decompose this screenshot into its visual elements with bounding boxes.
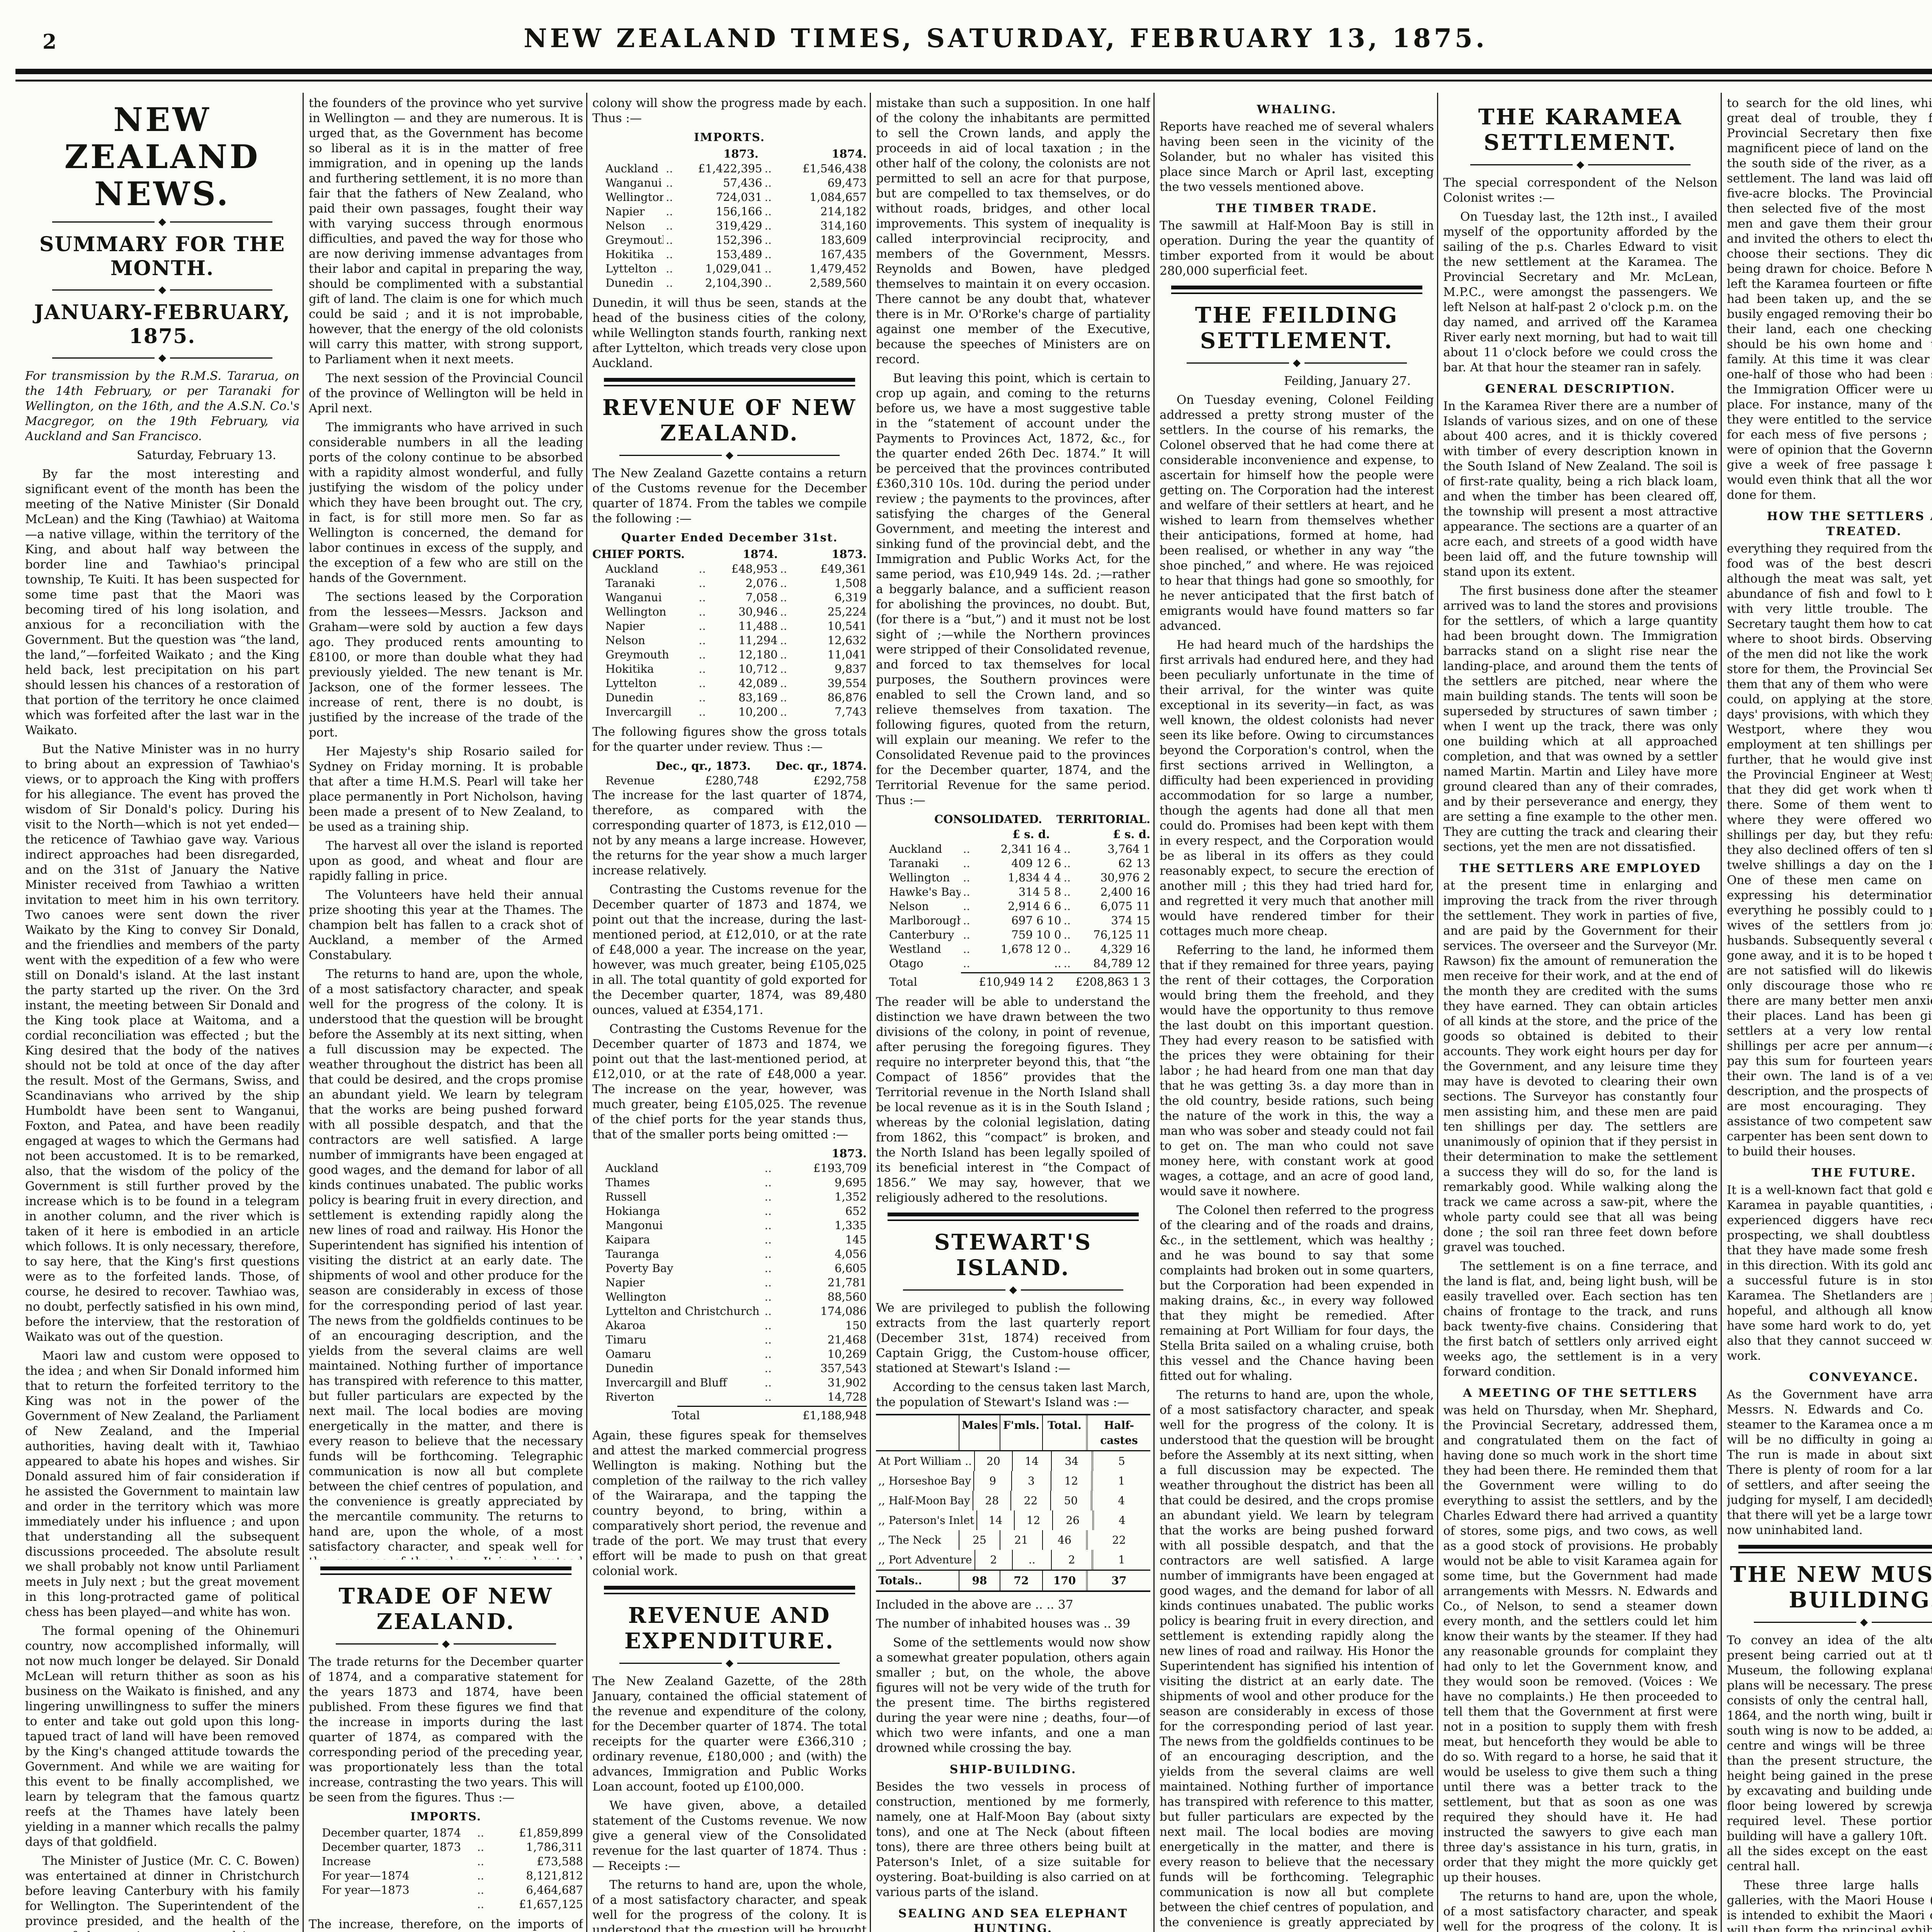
column-header: CHIEF PORTS. [592, 547, 689, 562]
cell: 1 [1092, 1550, 1150, 1570]
row-label: Hokitika [605, 662, 696, 676]
table-caption: Quarter Ended December 31st. [592, 530, 867, 545]
row-value: 76,125 11 [1073, 928, 1150, 942]
row-value: 2,104,390 [675, 276, 762, 290]
leader-dots: .. [663, 233, 675, 247]
column-subheader: £ s. d. [934, 827, 1050, 842]
table-row: Greymouth..152,396..183,609 [592, 233, 867, 247]
leader-dots: .. [961, 842, 972, 856]
row-value: 2,341 16 4 [973, 842, 1061, 856]
subhead-timber-trade: THE TIMBER TRADE. [1160, 201, 1434, 216]
row-value: 83,169 [708, 690, 778, 705]
row-value: 69,473 [774, 176, 867, 190]
table-subheaders: £ s. d. £ s. d. [876, 827, 1150, 842]
leader-dots: .. [778, 690, 789, 705]
leader-dots: .. [696, 590, 708, 605]
row-value: 1,786,311 [486, 1840, 583, 1854]
table-row: Hokitika..10,712..9,837 [592, 662, 867, 676]
headline-revenue-of-nz: REVENUE OF NEW ZEALAND. [592, 395, 867, 446]
table-row: ,, Port Adventure2..21 [876, 1550, 1150, 1570]
column-header: CONSOLIDATED. [915, 812, 1042, 827]
row-value: £1,657,125 [486, 1897, 583, 1912]
row-value: 1,678 12 0 [973, 942, 1061, 956]
leader-dots: .. [663, 247, 675, 262]
leader-dots: .. [961, 913, 972, 928]
table-row: ,, Half-Moon Bay2822504 [876, 1491, 1150, 1510]
row-label: Nelson [889, 899, 961, 913]
subtitle-summary: SUMMARY FOR THE MONTH. [25, 233, 299, 281]
row-value: 724,031 [675, 190, 762, 204]
row-value: 6,075 11 [1073, 899, 1150, 913]
table-note: Included in the above are .. .. 37 [876, 1597, 1150, 1612]
row-value: 409 12 6 [973, 856, 1061, 871]
cell: 98 [959, 1571, 1000, 1590]
body-paragraph: On Tuesday last, the 12th inst., I avail… [1443, 209, 1718, 375]
row-label: Hokianga [605, 1204, 762, 1218]
row-label: Lyttelton [605, 676, 696, 690]
row-value: £193,709 [774, 1161, 867, 1175]
row-label: Napier [605, 1276, 762, 1290]
row-label: Oamaru [605, 1347, 762, 1361]
subhead-general-description: GENERAL DESCRIPTION. [1443, 381, 1718, 396]
row-label: Auckland [605, 562, 696, 576]
table-row: Mangonui..1,335 [592, 1218, 867, 1233]
row-label: Dunedin [605, 1361, 762, 1376]
row-label: Wanganui [605, 176, 663, 190]
body-paragraph: The special correspondent of the Nelson … [1443, 175, 1718, 206]
column-divider [1437, 93, 1438, 1932]
row-value: 183,609 [774, 233, 867, 247]
row-label: Auckland [889, 842, 961, 856]
imports-by-port-table: IMPORTS. 1873. 1874. Auckland..£1,422,39… [592, 130, 867, 290]
leader-dots: .. [663, 204, 675, 219]
row-value: £10,949 14 2 [946, 975, 1054, 989]
leader-dots: .. [961, 928, 972, 942]
leader-dots: .. [663, 276, 675, 290]
row-value: 7,743 [789, 705, 867, 719]
row-label: Kaipara [605, 1233, 762, 1247]
cell: Totals.. [876, 1571, 959, 1590]
cell [876, 1415, 959, 1450]
table-row: Invercargill and Bluff..31,902 [592, 1376, 867, 1390]
leader-dots: .. [778, 562, 789, 576]
double-rule [1738, 1545, 1932, 1553]
section-title-nz-news: NEW ZEALAND NEWS. [25, 101, 299, 213]
table-row: Increase..£73,588 [309, 1854, 583, 1869]
leader-dots: .. [696, 676, 708, 690]
leader-dots: .. [762, 219, 774, 233]
cell: 20 [974, 1451, 1012, 1471]
subhead-conveyance: CONVEYANCE. [1727, 1370, 1932, 1385]
cell: 50 [1050, 1491, 1091, 1510]
table-row: ..£1,657,125 [309, 1897, 583, 1912]
diamond-rule: ◆ [52, 286, 272, 294]
table-row: ,, The Neck25214622 [876, 1530, 1150, 1550]
headline-trade-of-nz: TRADE OF NEW ZEALAND. [309, 1583, 583, 1634]
table-row: Auckland..£1,422,395..£1,546,438 [592, 162, 867, 176]
table-row: Napier..156,166..214,182 [592, 204, 867, 219]
year-header: 1874. [759, 146, 867, 162]
column-subheader: £ s. d. [1050, 827, 1150, 842]
leader-dots: .. [762, 1161, 774, 1175]
row-value: 153,489 [675, 247, 762, 262]
leader-dots: .. [762, 247, 774, 262]
double-rule [604, 378, 855, 386]
row-value: 57,436 [675, 176, 762, 190]
totals-headers: Dec., qr., 1873. Dec. qr., 1874. [592, 759, 867, 774]
row-label: Riverton [605, 1390, 762, 1404]
row-label: Greymouth [605, 233, 663, 247]
row-value: 1,029,041 [675, 262, 762, 276]
row-value: £73,588 [486, 1854, 583, 1869]
row-label: Lyttelton [605, 262, 663, 276]
row-value: 174,086 [774, 1304, 867, 1318]
double-rule [604, 1586, 855, 1594]
body-paragraph: The following figures show the gross tot… [592, 724, 867, 755]
leader-dots: .. [762, 1261, 774, 1276]
body-paragraph: the founders of the province who yet sur… [309, 96, 583, 367]
row-value: 8,121,812 [486, 1869, 583, 1883]
table-total-row: Totals.. 98 72 170 37 [876, 1570, 1150, 1590]
column-header: Dec., qr., 1873. [635, 759, 751, 774]
subtitle-daterange: JANUARY-FEBRUARY, 1875. [25, 301, 299, 349]
row-value: 2,076 [708, 576, 778, 590]
body-paragraph: As the Government have arranged with Mes… [1727, 1387, 1932, 1538]
headline-new-museum-building: THE NEW MUSEUM BUILDING. [1727, 1562, 1932, 1613]
row-label: Wellington [605, 1290, 762, 1304]
row-label: Lyttelton and Christchurch [605, 1304, 762, 1318]
table-row: Napier..11,488..10,541 [592, 619, 867, 633]
leader-dots: .. [762, 1190, 774, 1204]
table-row: Riverton..14,728 [592, 1390, 867, 1404]
row-value: 1,508 [789, 576, 867, 590]
cell: At Port William .. [876, 1451, 974, 1471]
subhead-how-settlers-treated: HOW THE SETTLERS ARE TREATED. [1727, 509, 1932, 539]
table-row: Hokitika..153,489..167,435 [592, 247, 867, 262]
row-value: 11,488 [708, 619, 778, 633]
table-row: Dunedin..2,104,390..2,589,560 [592, 276, 867, 290]
row-value: 10,712 [708, 662, 778, 676]
cell: 22 [1086, 1530, 1150, 1550]
leader-dots: .. [663, 190, 675, 204]
body-paragraph: The increase, therefore, on the imports … [309, 1917, 583, 1932]
table-row: Dunedin..83,169..86,876 [592, 690, 867, 705]
leader-dots: .. [778, 605, 789, 619]
leader-dots: .. [961, 885, 972, 899]
diamond-rule: ◆ [52, 218, 272, 226]
row-label: Total [605, 1408, 766, 1423]
row-value: 9,695 [774, 1175, 867, 1190]
row-value: £48,953 [708, 562, 778, 576]
table-row: Otago......84,789 12 [876, 956, 1150, 971]
leader-dots: .. [663, 176, 675, 190]
dateline: Feilding, January 27. [1160, 374, 1434, 389]
row-label: Nelson [605, 633, 696, 648]
row-value: .. [973, 956, 1061, 971]
table-row: December quarter, 1874..£1,859,899 [309, 1826, 583, 1840]
row-value: 319,429 [675, 219, 762, 233]
body-paragraph: The immigrants who have arrived in such … [309, 420, 583, 586]
row-label: Increase [322, 1854, 475, 1869]
transmission-note: For transmission by the R.M.S. Tararua, … [25, 369, 299, 444]
body-paragraph: Contrasting the Customs Revenue for the … [592, 1022, 867, 1142]
leader-dots: .. [1061, 956, 1073, 971]
body-paragraph: The harvest all over the island is repor… [309, 838, 583, 884]
table-row: Poverty Bay..6,605 [592, 1261, 867, 1276]
table-row: Auckland..£193,709 [592, 1161, 867, 1175]
table-row: At Port William ..2014345 [876, 1451, 1150, 1471]
row-value: 1,335 [774, 1218, 867, 1233]
cell: 4 [1091, 1491, 1150, 1510]
body-paragraph: The returns to hand are, upon the whole,… [1160, 1388, 1434, 1932]
dateline: Saturday, February 13. [25, 448, 299, 463]
cell: 21 [1000, 1530, 1042, 1550]
cell: 12 [1051, 1471, 1091, 1491]
row-value: 12,180 [708, 648, 778, 662]
leader-dots: .. [696, 690, 708, 705]
row-value: 1,479,452 [774, 262, 867, 276]
leader-dots: .. [762, 276, 774, 290]
total-rule [961, 972, 1150, 973]
table-row: Auckland..£48,953..£49,361 [592, 562, 867, 576]
body-paragraph: Some of the settlements would now show a… [876, 1635, 1150, 1756]
cell: 2 [975, 1550, 1012, 1570]
leader-dots: .. [778, 590, 789, 605]
table-row: Lyttelton..42,089..39,554 [592, 676, 867, 690]
diamond-rule: ◆ [336, 1640, 556, 1648]
row-value: 25,224 [789, 605, 867, 619]
leader-dots: .. [1061, 899, 1073, 913]
table-row: ,, Horseshoe Bay93121 [876, 1471, 1150, 1491]
row-value: 652 [774, 1204, 867, 1218]
body-paragraph: The returns to hand are, upon the whole,… [309, 967, 583, 1560]
row-value: 10,541 [789, 619, 867, 633]
leader-dots: .. [1061, 885, 1073, 899]
row-label: Otago [889, 956, 961, 971]
diamond-rule: ◆ [1470, 161, 1690, 168]
row-value: 7,058 [708, 590, 778, 605]
row-value: 314,160 [774, 219, 867, 233]
row-value: 86,876 [789, 690, 867, 705]
leader-dots: .. [475, 1854, 486, 1869]
row-label: Revenue [605, 774, 658, 788]
table-row: Lyttelton and Christchurch..174,086 [592, 1304, 867, 1318]
row-label: Auckland [605, 1161, 762, 1175]
body-paragraph: In the Karamea River there are a number … [1443, 399, 1718, 580]
row-value: £49,361 [789, 562, 867, 576]
body-paragraph: The returns to hand are, upon the whole,… [1443, 1889, 1718, 1932]
table-row: Napier..21,781 [592, 1276, 867, 1290]
leader-dots: .. [778, 662, 789, 676]
leader-dots: .. [778, 705, 789, 719]
table-row: Revenue £280,748 £292,758 [592, 774, 867, 788]
table-body: At Port William ..2014345,, Horseshoe Ba… [876, 1451, 1150, 1570]
newspaper-page: 2 NEW ZEALAND TIMES, SATURDAY, FEBRUARY … [0, 0, 1932, 1932]
body-paragraph: Maori law and custom were opposed to the… [25, 1349, 299, 1620]
leader-dots: .. [762, 204, 774, 219]
cell: .. [1012, 1550, 1051, 1570]
leader-dots: .. [762, 262, 774, 276]
cell: 46 [1042, 1530, 1086, 1550]
diamond-rule: ◆ [52, 354, 272, 362]
leader-dots: .. [475, 1840, 486, 1854]
row-label: For year—1874 [322, 1869, 475, 1883]
table-row: Kaipara..145 [592, 1233, 867, 1247]
column-2-upper: the founders of the province who yet sur… [309, 96, 583, 1560]
row-value: 9,837 [789, 662, 867, 676]
table-headers: CHIEF PORTS. 1874. 1873. [592, 547, 867, 562]
masthead-rule-thin [15, 80, 1932, 82]
body-paragraph: The settlement is on a fine terrace, and… [1443, 1259, 1718, 1379]
leader-dots: .. [762, 190, 774, 204]
row-label: Tauranga [605, 1247, 762, 1261]
leader-dots: .. [762, 1276, 774, 1290]
cell: 72 [1000, 1571, 1042, 1590]
table-row: Marlborough..697 6 10..374 15 [876, 913, 1150, 928]
diamond-rule: ◆ [1187, 359, 1407, 367]
row-value: 152,396 [675, 233, 762, 247]
masthead-title: NEW ZEALAND TIMES, SATURDAY, FEBRUARY 13… [0, 23, 1932, 53]
row-value: 156,166 [675, 204, 762, 219]
cell: 2 [1051, 1550, 1092, 1570]
row-value: £1,859,899 [486, 1826, 583, 1840]
leader-dots: .. [475, 1869, 486, 1883]
diamond-rule: ◆ [619, 451, 840, 459]
diamond-rule: ◆ [1754, 1618, 1932, 1626]
table-row: Wellington..1,834 4 4..30,976 2 [876, 871, 1150, 885]
row-label: Canterbury [889, 928, 961, 942]
leader-dots: .. [696, 662, 708, 676]
cell: 170 [1042, 1571, 1086, 1590]
table-row: Timaru..21,468 [592, 1333, 867, 1347]
leader-dots: .. [475, 1883, 486, 1897]
table-row: Canterbury..759 10 0..76,125 11 [876, 928, 1150, 942]
cell: 28 [973, 1491, 1010, 1510]
table-row: Lyttelton..1,029,041..1,479,452 [592, 262, 867, 276]
year-revenue-table: 1873. Auckland..£193,709Thames..9,695Rus… [592, 1146, 867, 1423]
row-value: 167,435 [774, 247, 867, 262]
row-value: 2,589,560 [774, 276, 867, 290]
row-value: 84,789 12 [1073, 956, 1150, 971]
leader-dots: .. [762, 1204, 774, 1218]
leader-dots: .. [778, 576, 789, 590]
cell: ,, Horseshoe Bay [876, 1471, 973, 1491]
table-header-row: Males F'mls. Total. Half-castes [876, 1415, 1150, 1451]
table-row: Total £1,188,948 [592, 1408, 867, 1423]
row-value: 11,041 [789, 648, 867, 662]
total-rule [677, 1406, 867, 1407]
leader-dots: .. [762, 176, 774, 190]
body-paragraph: To convey an idea of the alterations at … [1727, 1633, 1932, 1874]
row-label: Taranaki [889, 856, 961, 871]
body-paragraph: Dunedin, it will thus be seen, stands at… [592, 296, 867, 371]
headline-stewarts-island: STEWART'S ISLAND. [876, 1230, 1150, 1281]
body-paragraph: The reader will be able to understand th… [876, 995, 1150, 1206]
subhead-ship-building: SHIP-BUILDING. [876, 1762, 1150, 1777]
leader-dots: .. [696, 648, 708, 662]
table-row: Hawke's Bay..314 5 8..2,400 16 [876, 885, 1150, 899]
leader-dots: .. [1061, 942, 1073, 956]
column-5: WHALING. Reports have reached me of seve… [1160, 96, 1434, 1932]
body-paragraph: Her Majesty's ship Rosario sailed for Sy… [309, 744, 583, 835]
leader-dots: .. [762, 1361, 774, 1376]
leader-dots: .. [762, 1318, 774, 1333]
body-paragraph: The Colonel then referred to the progres… [1160, 1203, 1434, 1384]
row-label: Westland [889, 942, 961, 956]
table-row: Wanganui..57,436..69,473 [592, 176, 867, 190]
row-label: Poverty Bay [605, 1261, 762, 1276]
row-value: 1,352 [774, 1190, 867, 1204]
column-header: TERRITORIAL. [1042, 812, 1150, 827]
subhead-sealing: SEALING AND SEA ELEPHANT HUNTING. [876, 1906, 1150, 1932]
table-body: December quarter, 1874..£1,859,899Decemb… [309, 1826, 583, 1912]
body-paragraph: The next session of the Provincial Counc… [309, 371, 583, 416]
table-row: Dunedin..357,543 [592, 1361, 867, 1376]
row-label: Dunedin [605, 690, 696, 705]
leader-dots: .. [762, 1333, 774, 1347]
masthead-rule-thick [15, 69, 1932, 74]
row-value: 21,468 [774, 1333, 867, 1347]
table-row: Westland..1,678 12 0..4,329 16 [876, 942, 1150, 956]
body-paragraph: at the present time in enlarging and imp… [1443, 878, 1718, 1255]
row-label: For year—1873 [322, 1883, 475, 1897]
body-paragraph: But leaving this point, which is certain… [876, 371, 1150, 808]
leader-dots: .. [762, 233, 774, 247]
leader-dots: .. [762, 162, 774, 176]
leader-dots: .. [778, 619, 789, 633]
table-body: Auckland..£193,709Thames..9,695Russell..… [592, 1161, 867, 1404]
subhead-settlers-employed: THE SETTLERS ARE EMPLOYED [1443, 861, 1718, 876]
leader-dots: .. [696, 633, 708, 648]
leader-dots: .. [778, 633, 789, 648]
diamond-rule: ◆ [619, 1659, 840, 1667]
row-value: 374 15 [1073, 913, 1150, 928]
table-row: Invercargill..10,200..7,743 [592, 705, 867, 719]
cell: Males [959, 1415, 1000, 1450]
diamond-rule: ◆ [903, 1286, 1123, 1294]
leader-dots: .. [1061, 842, 1073, 856]
column-6: THE KARAMEA SETTLEMENT. ◆ The special co… [1443, 96, 1718, 1932]
leader-dots: .. [961, 871, 972, 885]
row-label: December quarter, 1874 [322, 1826, 475, 1840]
table-row: Akaroa..150 [592, 1318, 867, 1333]
body-paragraph: to search for the old lines, which, afte… [1727, 96, 1932, 503]
table-row: Greymouth..12,180..11,041 [592, 648, 867, 662]
row-label: Napier [605, 619, 696, 633]
column-1: NEW ZEALAND NEWS. ◆ SUMMARY FOR THE MONT… [25, 96, 299, 1932]
row-label: Wanganui [605, 590, 696, 605]
column-divider [1721, 93, 1722, 1932]
row-label: Greymouth [605, 648, 696, 662]
row-value: £1,188,948 [766, 1408, 867, 1423]
leader-dots: .. [762, 1175, 774, 1190]
headline-feilding-settlement: THE FEILDING SETTLEMENT. [1160, 303, 1434, 354]
cell: 9 [973, 1471, 1011, 1491]
row-label: Napier [605, 204, 663, 219]
leader-dots: .. [663, 262, 675, 276]
column-4: mistake than such a supposition. In one … [876, 96, 1150, 1932]
column-3: colony will show the progress made by ea… [592, 96, 867, 1932]
table-body: Auckland..2,341 16 4..3,764 1Taranaki..4… [876, 842, 1150, 971]
table-row: Wellington..30,946..25,224 [592, 605, 867, 619]
table-row: Wellington..88,560 [592, 1290, 867, 1304]
body-paragraph: On Tuesday evening, Colonel Feilding add… [1160, 393, 1434, 634]
row-value: 2,400 16 [1073, 885, 1150, 899]
leader-dots: .. [696, 576, 708, 590]
row-value: 3,764 1 [1073, 842, 1150, 856]
body-paragraph: Contrasting the Customs revenue for the … [592, 882, 867, 1018]
table-row: Oamaru..10,269 [592, 1347, 867, 1361]
